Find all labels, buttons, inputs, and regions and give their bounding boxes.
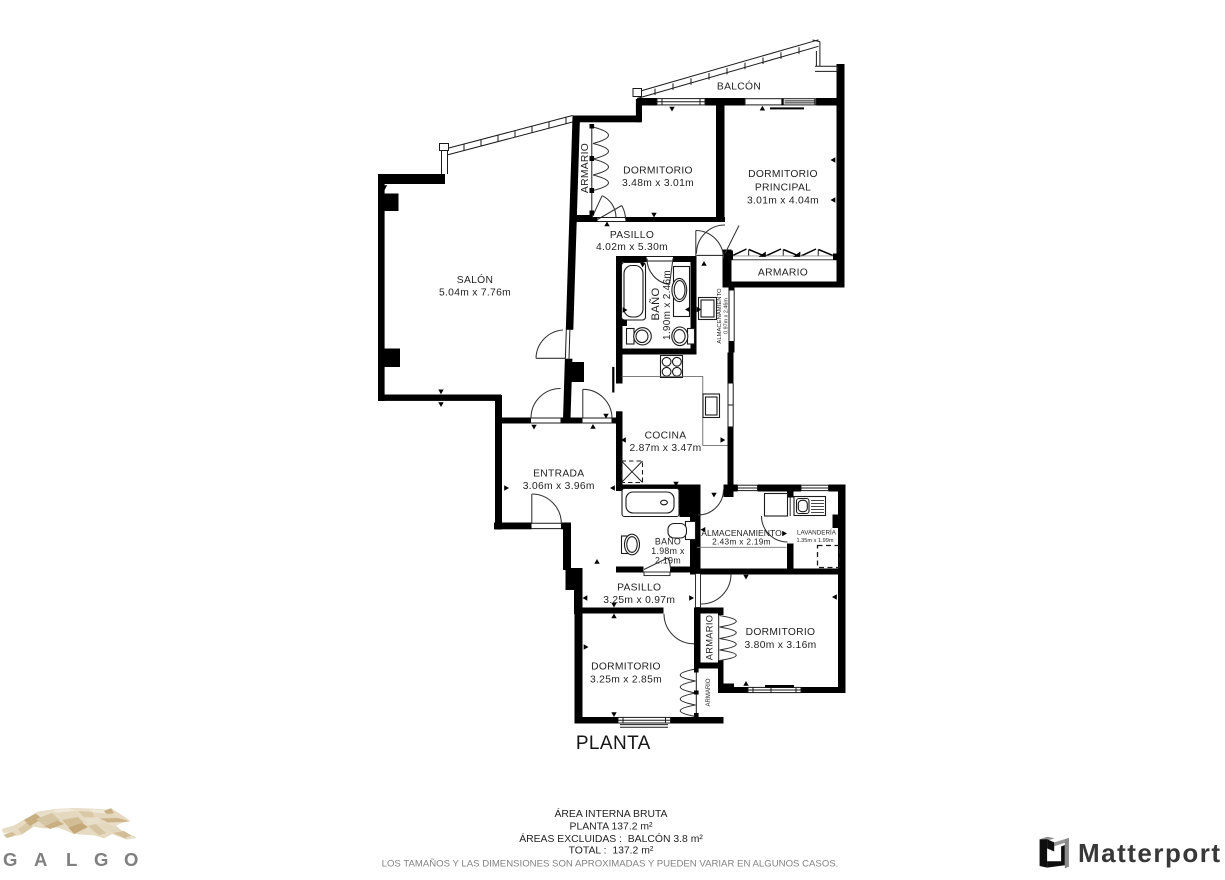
svg-text:ARMARIO: ARMARIO [705,615,715,661]
svg-text:DORMITORIO: DORMITORIO [748,169,818,180]
svg-text:ARMARIO: ARMARIO [706,678,712,706]
svg-text:PLANTA: PLANTA [576,733,651,754]
svg-text:ARMARIO: ARMARIO [758,268,808,279]
svg-text:3.25m x 2.85m: 3.25m x 2.85m [590,675,662,686]
svg-text:3.06m x 3.96m: 3.06m x 3.96m [523,481,595,492]
svg-text:PLANTA 137.2 m²: PLANTA 137.2 m² [570,822,654,833]
svg-text:ARMARIO: ARMARIO [580,143,591,193]
svg-text:LOS TAMAÑOS Y LAS DIMENSIONES: LOS TAMAÑOS Y LAS DIMENSIONES SON APROXI… [382,859,839,870]
svg-text:4.02m x 5.30m: 4.02m x 5.30m [596,242,668,253]
svg-text:PASILLO: PASILLO [610,230,654,241]
svg-text:1.98m x: 1.98m x [651,546,685,556]
svg-text:3.25m x 0.97m: 3.25m x 0.97m [603,595,675,606]
svg-text:L: L [66,849,77,870]
svg-text:3.48m x 3.01m: 3.48m x 3.01m [622,178,694,189]
svg-text:DORMITORIO: DORMITORIO [746,627,816,638]
svg-text:ÁREA INTERNA BRUTA: ÁREA INTERNA BRUTA [555,807,668,820]
svg-text:BALCÓN: BALCÓN [717,80,761,93]
svg-text:1.90m x 2.46m: 1.90m x 2.46m [662,270,673,340]
svg-text:Matterport: Matterport [1078,838,1222,868]
svg-text:O: O [124,849,138,870]
svg-text:DORMITORIO: DORMITORIO [623,166,693,177]
svg-text:TOTAL : 137.2 m²: TOTAL : 137.2 m² [569,846,654,857]
svg-text:0.97m x 2.46m: 0.97m x 2.46m [724,298,730,334]
svg-text:G: G [94,849,108,870]
svg-text:PRINCIPAL: PRINCIPAL [755,183,811,194]
svg-text:ALMACENAMIENTO: ALMACENAMIENTO [717,288,723,344]
svg-text:2.87m x 3.47m: 2.87m x 3.47m [629,443,701,454]
svg-text:BAÑO: BAÑO [655,537,681,547]
svg-text:ÁREAS EXCLUIDAS : BALCÓN 3.8: ÁREAS EXCLUIDAS : BALCÓN 3.8 m² [519,832,703,845]
svg-text:3.01m x 4.04m: 3.01m x 4.04m [747,196,819,207]
svg-text:2.43m x 2.19m: 2.43m x 2.19m [712,537,771,547]
svg-text:1.35m x 1.99m: 1.35m x 1.99m [797,538,834,544]
svg-text:DORMITORIO: DORMITORIO [591,662,661,673]
svg-text:LAVANDERÍA: LAVANDERÍA [797,528,837,537]
svg-text:ENTRADA: ENTRADA [533,469,584,480]
svg-text:BAÑO: BAÑO [649,288,662,321]
svg-text:5.04m x 7.76m: 5.04m x 7.76m [439,288,511,299]
svg-text:SALÓN: SALÓN [457,273,493,286]
svg-text:A: A [34,849,47,870]
svg-text:2.19m: 2.19m [655,556,681,566]
svg-text:PASILLO: PASILLO [617,583,661,594]
svg-text:3.80m x 3.16m: 3.80m x 3.16m [744,640,816,651]
svg-text:G: G [3,849,17,870]
svg-text:COCINA: COCINA [645,431,687,442]
